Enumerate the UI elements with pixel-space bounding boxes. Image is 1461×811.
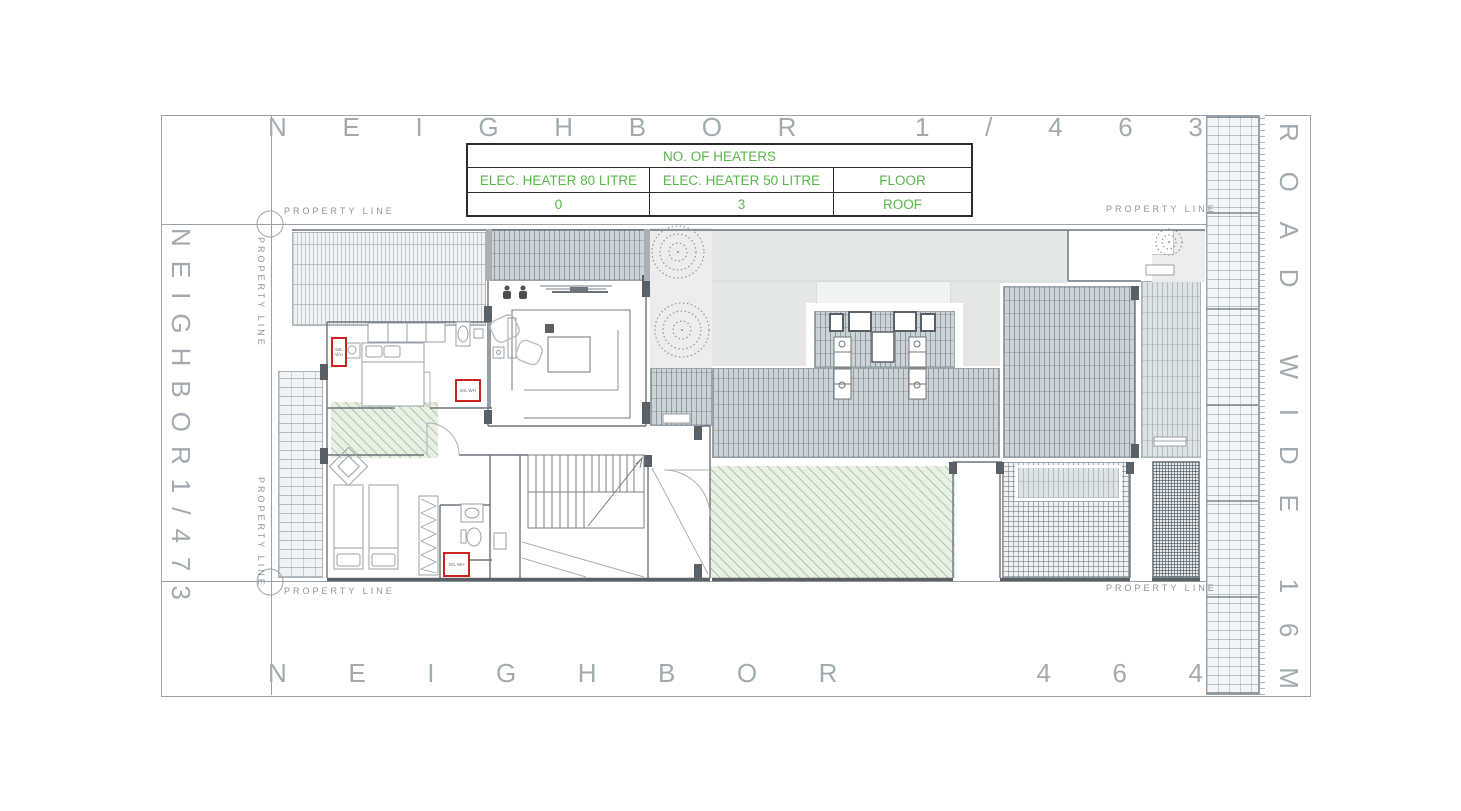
water-heater-tag: 50L WH [448,562,464,567]
property-line-label-left-lower: PROPERTY LINE [256,477,265,569]
heater-table-val-floor: ROOF [834,193,971,215]
heater-table-val-80litre: 0 [468,193,650,215]
heater-table-title: NO. OF HEATERS [468,145,971,168]
property-line-label-topleft: PROPERTY LINE [284,207,395,216]
entrance-canopy-hatch [488,229,646,281]
heater-schedule-table: NO. OF HEATERS ELEC. HEATER 80 LITRE ELE… [466,143,973,217]
property-line-label-left-upper: PROPERTY LINE [256,237,265,329]
pergola-inset-plank [1015,465,1122,501]
property-line-label-bottomright: PROPERTY LINE [1106,584,1217,593]
deck-hatch-left [650,368,712,426]
deck-hatch-right [1003,286,1135,458]
heater-table-val-50litre: 3 [650,193,834,215]
road-curb-ticks [1259,115,1265,695]
heater-table-col-80litre: ELEC. HEATER 80 LITRE [468,168,650,193]
deck-hatch-main [712,368,1000,458]
louver-dense-hatch [1152,461,1200,578]
water-heater-marker-3: 50L WH [443,552,470,577]
neighbor-label-top: NEIGHBOR 1/463 [268,114,1203,142]
green-roof-large [710,466,955,578]
skylight-block-hatch [814,311,955,368]
roof-deck-hatch-topleft [292,232,486,326]
water-heater-tag: 50L WH [460,388,476,393]
road-paving-hatch [1206,115,1259,695]
property-line-label-topright: PROPERTY LINE [1106,205,1217,214]
tree-square-notch [1152,229,1174,255]
tree-court-panel [650,228,712,368]
neighbor-label-bottom: NEIGHBOR 464 [268,660,1203,688]
water-heater-marker-1: 50L WH [331,337,347,367]
heater-table-col-50litre: ELEC. HEATER 50 LITRE [650,168,834,193]
property-line-label-bottomleft: PROPERTY LINE [284,587,395,596]
road-label-right: ROAD WIDE 16M [1275,123,1302,689]
drawing-sheet: 50L WH 50L WH 50L WH NO. OF HEATERS ELEC… [0,0,1461,811]
left-column-divider [271,115,272,695]
green-patio-small [331,402,438,458]
property-line-bottom [161,581,1206,582]
heater-table-col-floor: FLOOR [834,168,971,193]
water-heater-tag: 50L WH [333,347,345,357]
deck-hatch-farright [1141,281,1201,458]
neighbor-label-left: NEIGHBOR1/473 [167,228,194,600]
property-line-top [161,224,1206,225]
water-heater-marker-2: 50L WH [455,379,481,402]
side-paving-strip [278,371,323,578]
